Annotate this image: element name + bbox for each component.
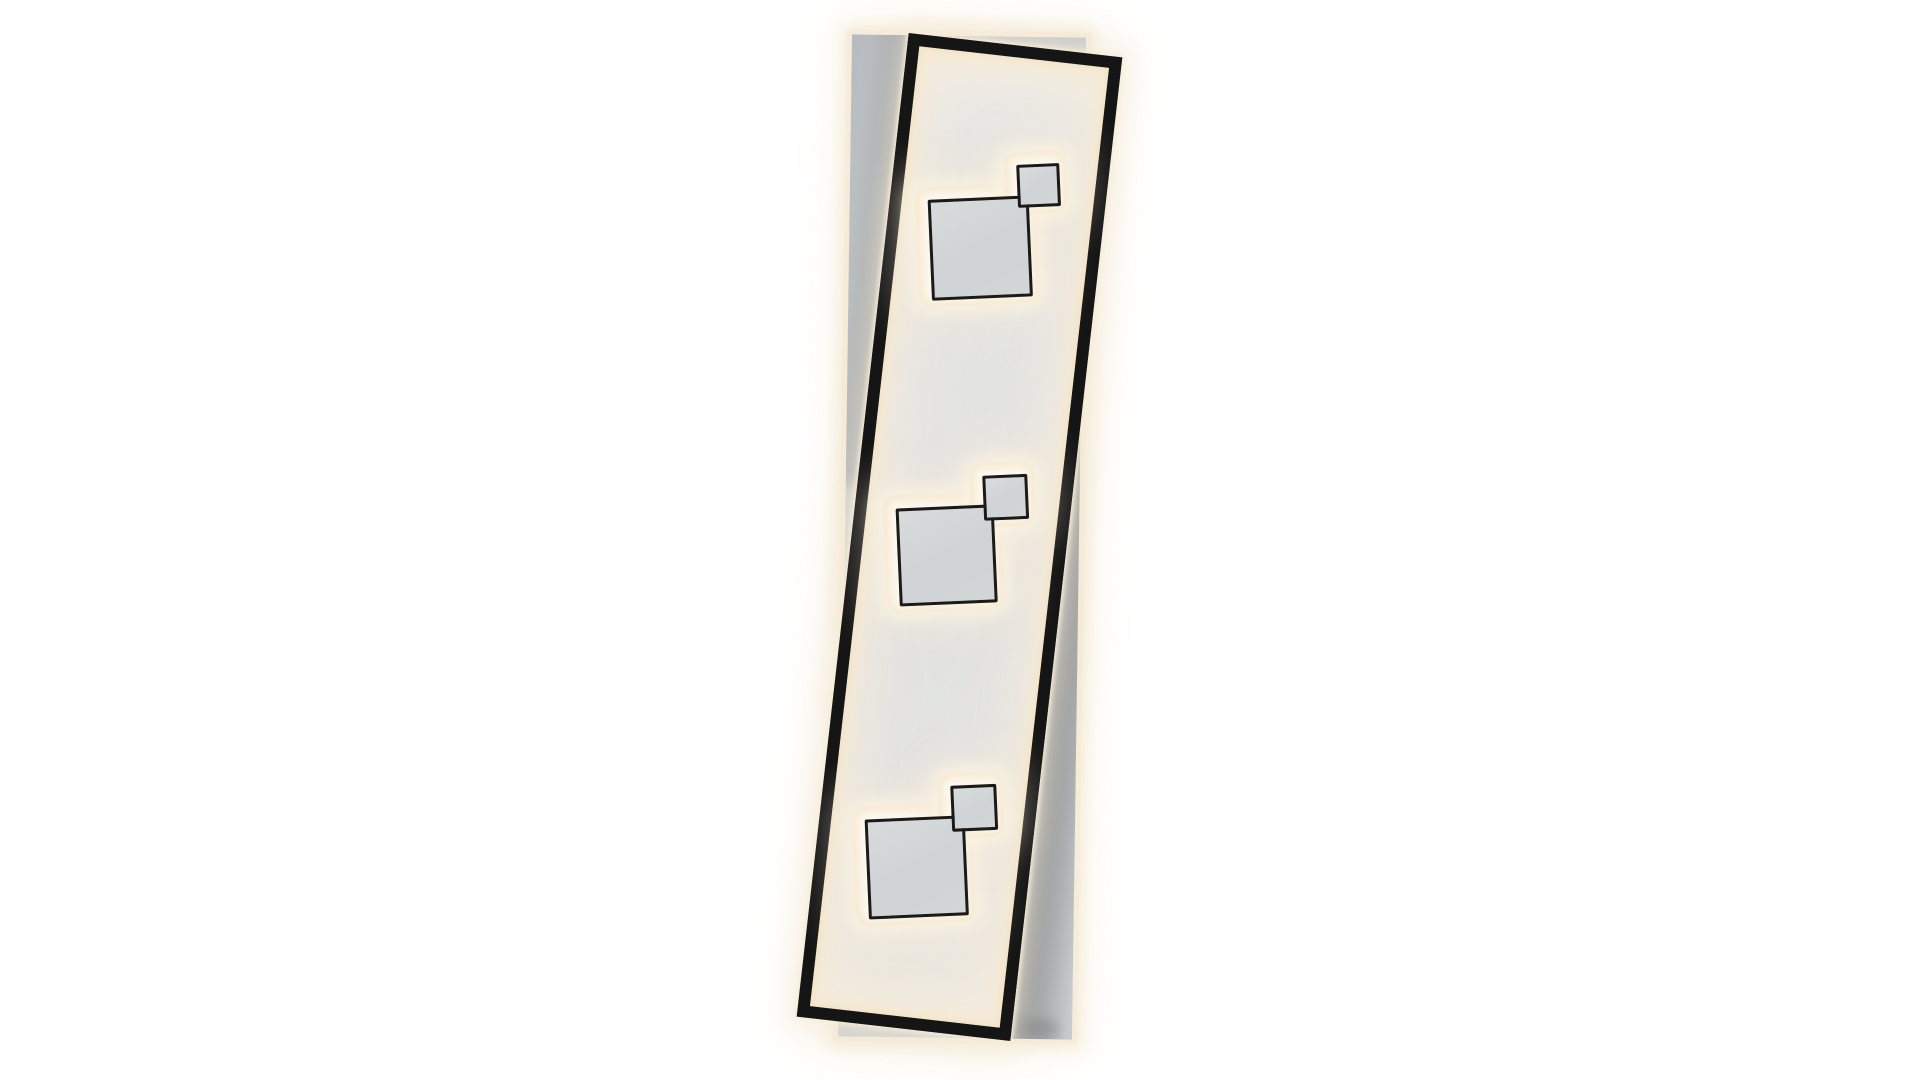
product-photo	[0, 0, 1920, 1080]
square-module-group-middle	[872, 452, 1039, 629]
square-small-top	[1016, 163, 1061, 208]
square-small-middle	[982, 474, 1029, 521]
square-small-bottom	[950, 784, 998, 832]
square-module-group-bottom	[841, 762, 1008, 939]
square-big-middle	[896, 504, 998, 606]
square-big-top	[928, 195, 1033, 300]
square-module-group-top	[904, 141, 1081, 318]
